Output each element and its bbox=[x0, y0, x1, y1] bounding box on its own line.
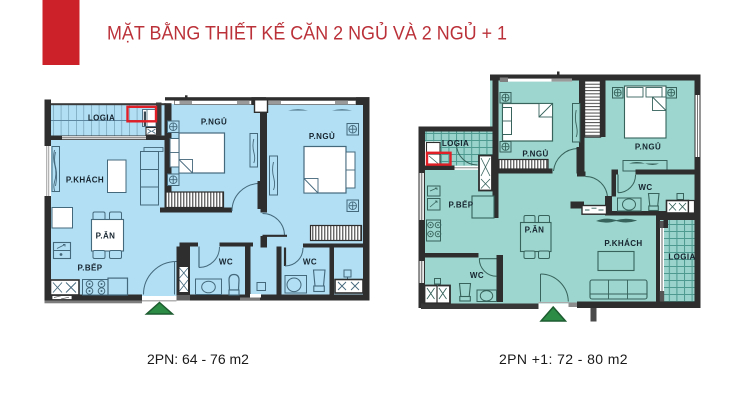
svg-text:P.NGỦ: P.NGỦ bbox=[635, 143, 661, 152]
svg-text:P.ĂN: P.ĂN bbox=[525, 226, 545, 235]
svg-text:P.NGỦ: P.NGỦ bbox=[522, 150, 548, 159]
svg-text:WC: WC bbox=[470, 271, 484, 280]
svg-text:P.ĂN: P.ĂN bbox=[96, 232, 116, 241]
svg-text:LOGIA: LOGIA bbox=[88, 114, 115, 123]
svg-text:P.BẾP: P.BẾP bbox=[449, 200, 474, 210]
svg-text:LOGIA: LOGIA bbox=[668, 253, 695, 262]
svg-text:P.BẾP: P.BẾP bbox=[78, 263, 103, 273]
svg-text:MẶT BẰNG THIẾT KẾ CĂN 2 NGỦ VÀ: MẶT BẰNG THIẾT KẾ CĂN 2 NGỦ VÀ 2 NGỦ + 1 bbox=[107, 23, 507, 45]
svg-text:P.KHÁCH: P.KHÁCH bbox=[604, 239, 642, 248]
svg-text:WC: WC bbox=[303, 258, 317, 267]
svg-text:2PN: 64 - 76 m2: 2PN: 64 - 76 m2 bbox=[147, 351, 249, 367]
svg-text:2PN +1: 72 - 80 m2: 2PN +1: 72 - 80 m2 bbox=[499, 351, 628, 367]
svg-text:WC: WC bbox=[638, 183, 652, 192]
svg-text:P.NGỦ: P.NGỦ bbox=[201, 118, 227, 127]
svg-text:P.KHÁCH: P.KHÁCH bbox=[66, 176, 104, 185]
svg-text:LOGIA: LOGIA bbox=[442, 139, 469, 148]
svg-text:P.NGỦ: P.NGỦ bbox=[309, 132, 335, 141]
svg-text:WC: WC bbox=[219, 258, 233, 267]
